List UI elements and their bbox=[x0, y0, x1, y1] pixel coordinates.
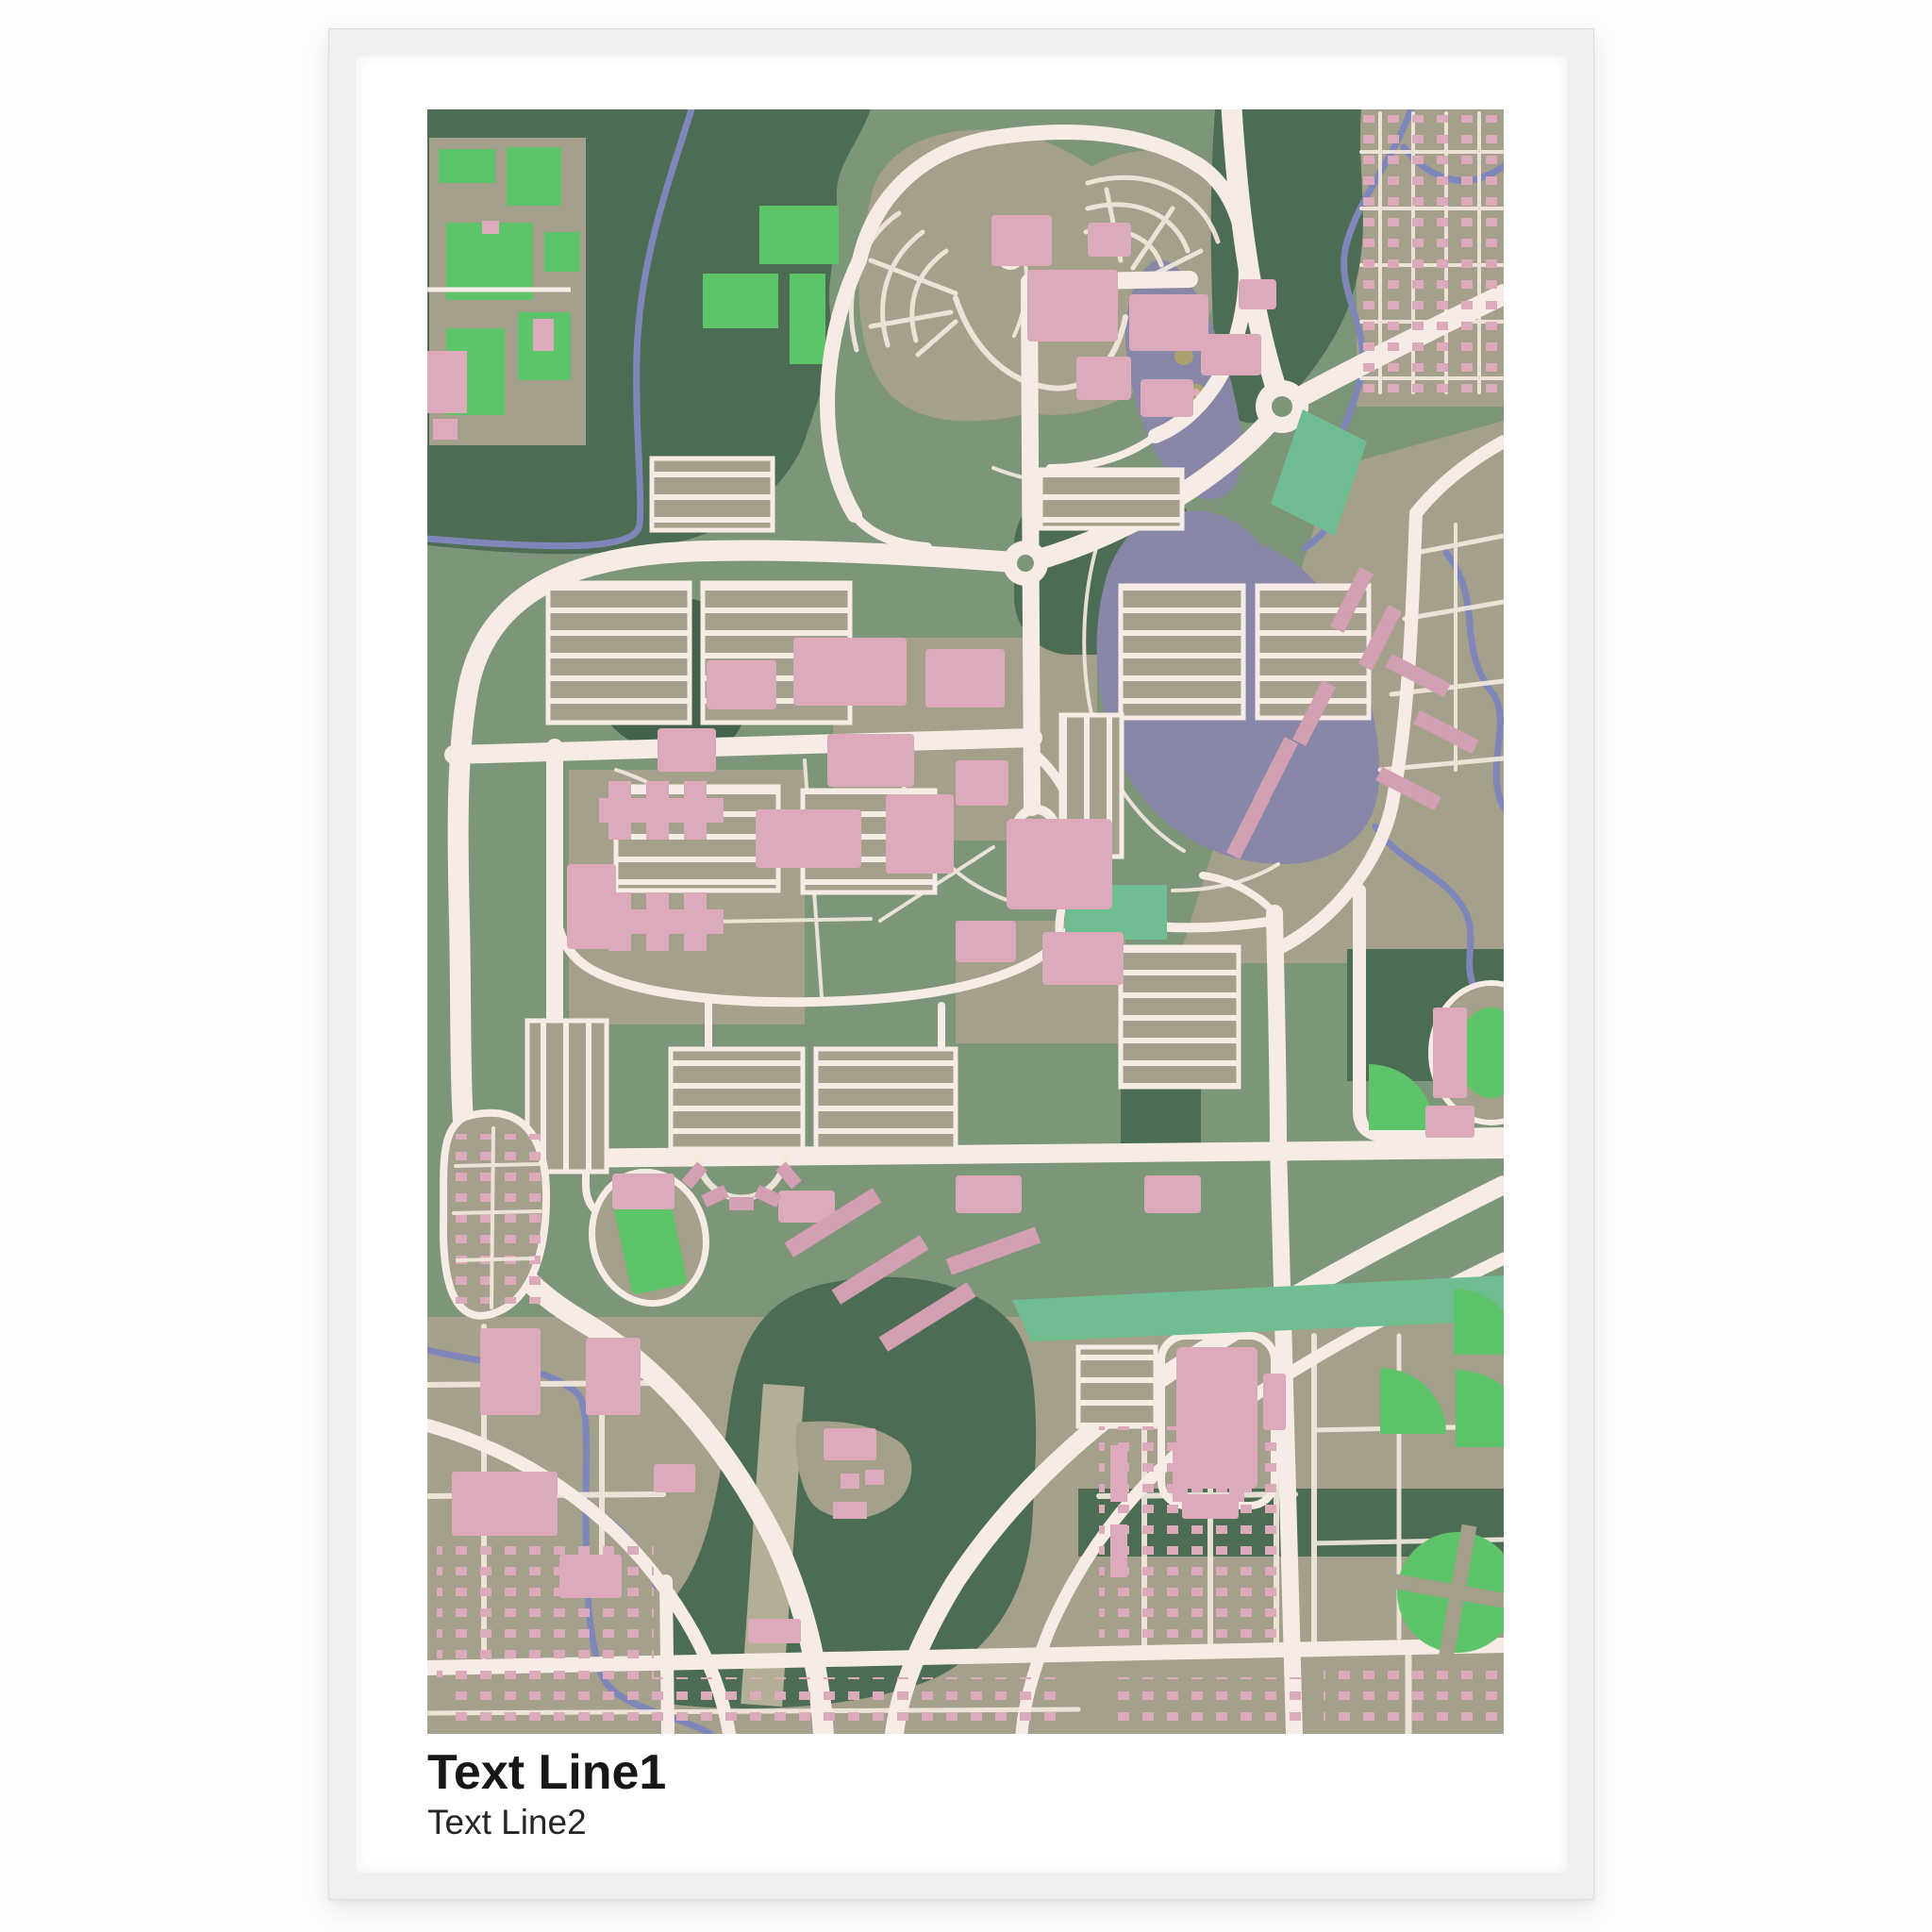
page-root: { "poster": { "title_line1": "Text Line1… bbox=[0, 0, 1932, 1932]
poster-caption: Text Line1 Text Line2 bbox=[427, 1746, 666, 1842]
poster-paper: Text Line1 Text Line2 bbox=[356, 56, 1567, 1873]
poster-frame: Text Line1 Text Line2 bbox=[328, 28, 1594, 1900]
map-feature-teardrop-pocket bbox=[443, 1113, 546, 1316]
poster-title-line2: Text Line2 bbox=[427, 1803, 666, 1841]
map-artwork bbox=[427, 109, 1504, 1734]
poster-title-line1: Text Line1 bbox=[427, 1746, 666, 1799]
